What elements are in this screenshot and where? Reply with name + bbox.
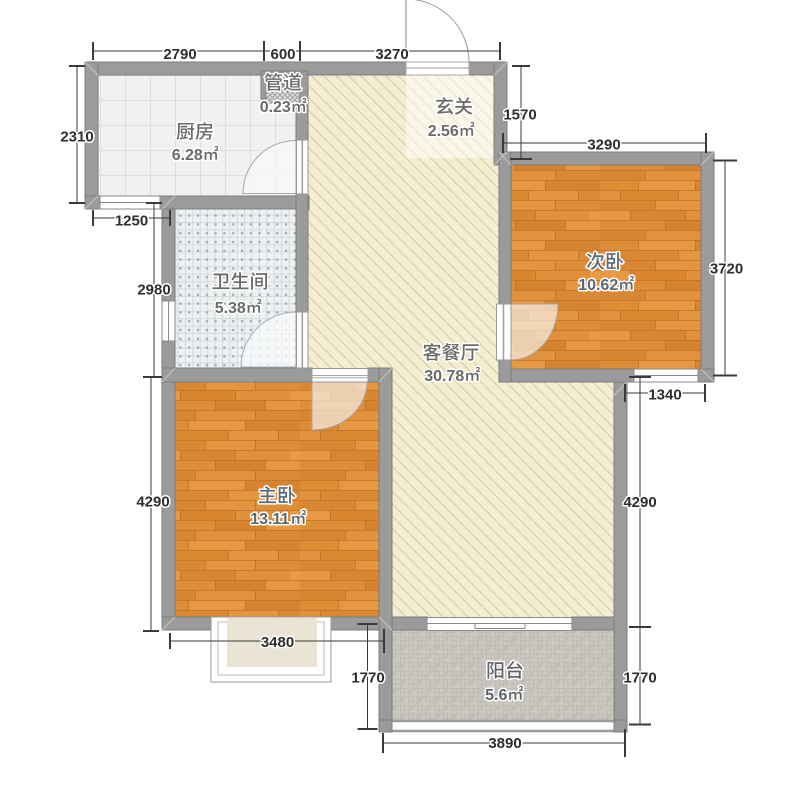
- svg-text:13.11: 13.11: [250, 511, 289, 528]
- svg-text:1250: 1250: [115, 212, 148, 229]
- svg-text:1770: 1770: [623, 669, 656, 686]
- svg-text:10.62: 10.62: [578, 277, 618, 294]
- svg-text:4290: 4290: [623, 494, 656, 511]
- svg-text:4290: 4290: [136, 493, 169, 510]
- svg-text:3270: 3270: [375, 46, 408, 63]
- svg-text:2980: 2980: [137, 281, 170, 298]
- svg-text:3890: 3890: [488, 735, 521, 752]
- svg-text:600: 600: [270, 46, 295, 63]
- svg-text:3290: 3290: [587, 136, 620, 153]
- svg-text:1770: 1770: [351, 669, 384, 686]
- svg-text:1340: 1340: [648, 386, 681, 403]
- svg-text:3720: 3720: [710, 260, 743, 277]
- svg-text:6.28: 6.28: [172, 147, 203, 164]
- svg-text:1570: 1570: [503, 106, 536, 123]
- svg-text:2790: 2790: [163, 46, 196, 63]
- svg-text:2310: 2310: [60, 128, 93, 145]
- svg-text:30.78: 30.78: [424, 368, 464, 385]
- svg-text:5.38: 5.38: [215, 300, 246, 317]
- svg-text:2.56: 2.56: [428, 123, 459, 140]
- svg-text:3480: 3480: [261, 634, 294, 651]
- svg-text:0.23: 0.23: [260, 99, 291, 116]
- svg-text:5.6: 5.6: [485, 687, 507, 704]
